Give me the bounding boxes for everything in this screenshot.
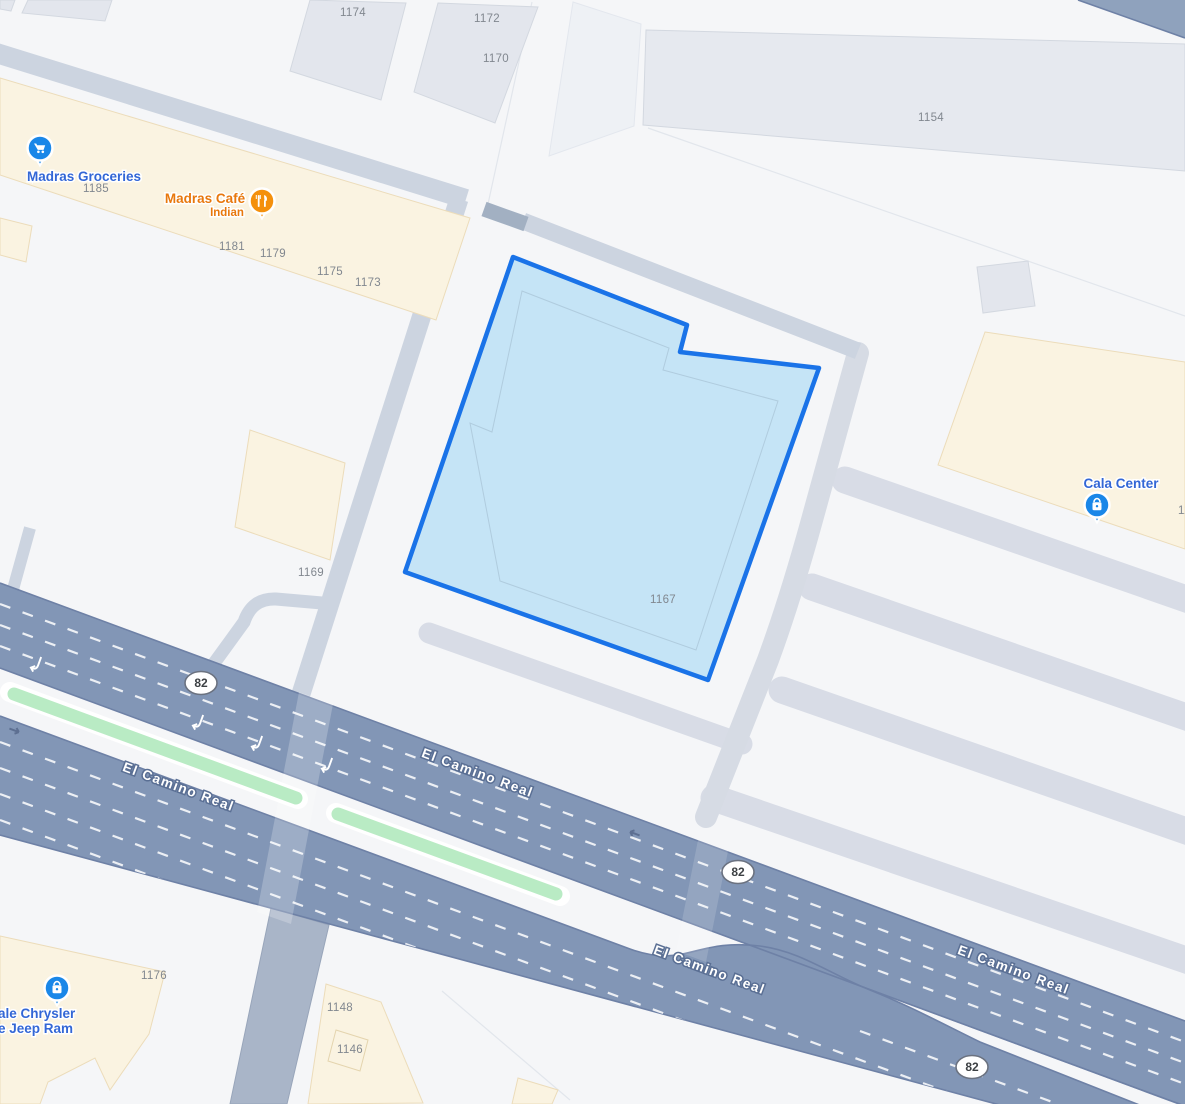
poi-sublabel-madras-cafe: Indian xyxy=(210,207,244,219)
poi-label-madras-cafe[interactable]: Madras Café xyxy=(165,191,246,206)
address-label: 1185 xyxy=(83,183,109,195)
poi-label-cala-center[interactable]: Cala Center xyxy=(1083,476,1159,491)
address-label: 1172 xyxy=(474,13,500,25)
route-82-shield: 82 xyxy=(722,861,754,884)
route-82-shield: 82 xyxy=(185,672,217,695)
building-small-west xyxy=(0,218,32,262)
address-label-cutoff: 11 xyxy=(1178,505,1185,517)
poi-label-dealer-line1[interactable]: ale Chrysler xyxy=(0,1006,76,1021)
route-82-shield-label: 82 xyxy=(731,865,745,879)
map-svg[interactable]: 1174 1172 1170 1154 1185 1181 1179 1175 … xyxy=(0,0,1185,1104)
building-small-east xyxy=(977,261,1035,313)
address-label: 1173 xyxy=(355,277,381,289)
map-canvas[interactable]: 1174 1172 1170 1154 1185 1181 1179 1175 … xyxy=(0,0,1185,1104)
address-label: 1181 xyxy=(219,241,245,253)
address-label: 1176 xyxy=(141,970,167,982)
address-label: 1170 xyxy=(483,53,509,65)
route-82-shield-label: 82 xyxy=(194,676,208,690)
address-label: 1174 xyxy=(340,7,366,19)
address-label: 1179 xyxy=(260,248,286,260)
address-label: 1146 xyxy=(337,1044,363,1056)
route-82-shield: 82 xyxy=(956,1056,988,1079)
poi-label-dealer-line2[interactable]: e Jeep Ram xyxy=(0,1021,73,1036)
address-label: 1175 xyxy=(317,266,343,278)
address-label: 1169 xyxy=(298,567,324,579)
route-82-shield-label: 82 xyxy=(965,1060,979,1074)
poi-label-madras-groceries[interactable]: Madras Groceries xyxy=(27,169,141,184)
address-label: 1167 xyxy=(650,594,676,606)
address-label: 1154 xyxy=(918,112,944,124)
address-label: 1148 xyxy=(327,1002,353,1014)
